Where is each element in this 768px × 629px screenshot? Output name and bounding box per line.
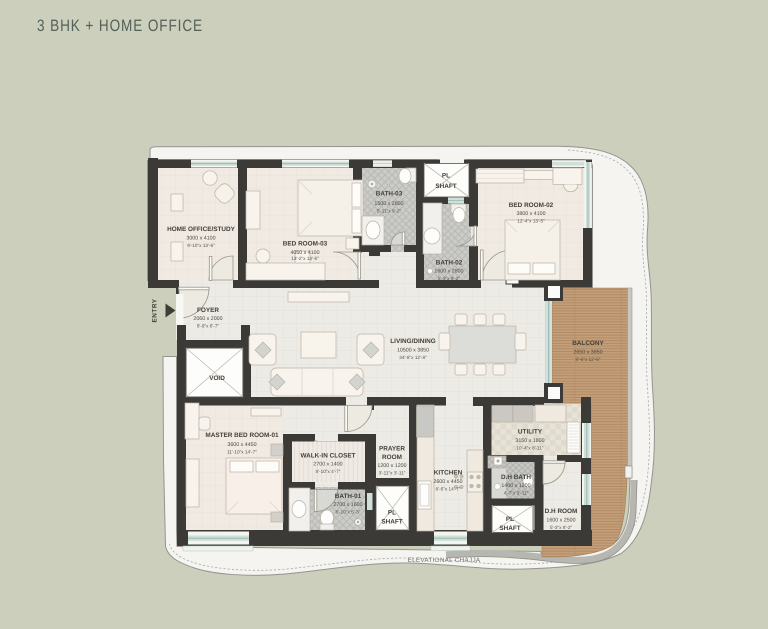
svg-text:PL: PL	[388, 510, 396, 517]
svg-text:UTILITY: UTILITY	[518, 429, 543, 436]
svg-text:3'-11"x 3'-11": 3'-11"x 3'-11"	[379, 471, 406, 476]
svg-text:11'-10"x 14'-7": 11'-10"x 14'-7"	[227, 450, 257, 455]
svg-text:PRAYER: PRAYER	[379, 446, 405, 453]
svg-text:D.H BATH: D.H BATH	[501, 474, 531, 481]
svg-text:FOYER: FOYER	[197, 307, 219, 314]
svg-text:10500 x 3850: 10500 x 3850	[397, 348, 429, 354]
svg-text:5'-3"x 9'-2": 5'-3"x 9'-2"	[438, 276, 461, 281]
svg-text:1600 x 2800: 1600 x 2800	[434, 269, 463, 275]
svg-text:2650 x 3850: 2650 x 3850	[573, 350, 602, 356]
svg-text:13'-2"x 13'-6": 13'-2"x 13'-6"	[291, 256, 319, 261]
svg-text:SHAFT: SHAFT	[499, 525, 520, 532]
svg-text:BED ROOM-03: BED ROOM-03	[283, 241, 328, 248]
svg-text:ELEVATIONAL CHAJJA: ELEVATIONAL CHAJJA	[408, 557, 481, 564]
svg-text:3600 x 4450: 3600 x 4450	[227, 442, 256, 448]
svg-text:BATH-01: BATH-01	[335, 493, 362, 500]
svg-text:D.H ROOM: D.H ROOM	[545, 508, 578, 515]
svg-text:8'-10"x 5'-3": 8'-10"x 5'-3"	[336, 510, 361, 515]
svg-text:9'-10"x 13'-6": 9'-10"x 13'-6"	[187, 243, 215, 248]
svg-text:BATH-02: BATH-02	[436, 260, 463, 267]
svg-text:2060 x 2000: 2060 x 2000	[193, 316, 222, 322]
svg-text:6'-9"x 6'-7": 6'-9"x 6'-7"	[197, 324, 220, 329]
svg-text:8'-10"x 4'-7": 8'-10"x 4'-7"	[316, 469, 341, 474]
svg-text:1200 x 1200: 1200 x 1200	[377, 463, 406, 469]
svg-text:ENTRY: ENTRY	[152, 298, 159, 322]
svg-text:1400 x 1200: 1400 x 1200	[501, 483, 530, 489]
svg-text:3800 x 4100: 3800 x 4100	[516, 211, 545, 217]
svg-text:3000 x 4100: 3000 x 4100	[186, 236, 215, 242]
svg-text:10'-4"x 8'-11": 10'-4"x 8'-11"	[516, 446, 544, 451]
svg-text:BED ROOM-02: BED ROOM-02	[509, 202, 554, 209]
svg-text:34'-8"x 12'-8": 34'-8"x 12'-8"	[399, 355, 427, 360]
svg-text:3 BHK + HOME OFFICE: 3 BHK + HOME OFFICE	[37, 17, 203, 35]
svg-text:4'-7"x 3'-11": 4'-7"x 3'-11"	[504, 491, 529, 496]
svg-text:12'-4"x 13'-5": 12'-4"x 13'-5"	[517, 219, 545, 224]
svg-text:BATH-03: BATH-03	[376, 191, 403, 198]
svg-text:VOID: VOID	[209, 375, 225, 382]
svg-text:PL: PL	[506, 516, 514, 523]
svg-text:2600 x 4450: 2600 x 4450	[433, 479, 462, 485]
svg-text:SHAFT: SHAFT	[381, 519, 402, 526]
svg-text:5'-3"x 8'-2": 5'-3"x 8'-2"	[550, 525, 573, 530]
svg-text:3150 x 1800: 3150 x 1800	[515, 438, 544, 444]
svg-text:1600 x 2500: 1600 x 2500	[546, 518, 575, 524]
svg-text:2700 x 1400: 2700 x 1400	[313, 462, 342, 468]
svg-text:8'-6"x 14'-7": 8'-6"x 14'-7"	[436, 487, 461, 492]
svg-text:8'-6"x 12'-6": 8'-6"x 12'-6"	[576, 357, 601, 362]
svg-text:1500 x 2800: 1500 x 2800	[374, 201, 403, 207]
svg-text:LIVING/DINING: LIVING/DINING	[390, 338, 435, 345]
svg-text:BALCONY: BALCONY	[572, 340, 604, 347]
svg-text:ROOM: ROOM	[382, 454, 402, 461]
svg-text:2700 x 1600: 2700 x 1600	[333, 502, 362, 508]
svg-text:5'-11"x 9'-2": 5'-11"x 9'-2"	[377, 209, 402, 214]
svg-text:WALK-IN CLOSET: WALK-IN CLOSET	[300, 453, 355, 460]
svg-text:HOME OFFICE/STUDY: HOME OFFICE/STUDY	[167, 226, 236, 233]
svg-text:SHAFT: SHAFT	[435, 183, 456, 190]
svg-text:MASTER BED ROOM-01: MASTER BED ROOM-01	[205, 432, 279, 439]
svg-text:PL: PL	[442, 173, 450, 180]
svg-text:KITCHEN: KITCHEN	[434, 470, 463, 477]
